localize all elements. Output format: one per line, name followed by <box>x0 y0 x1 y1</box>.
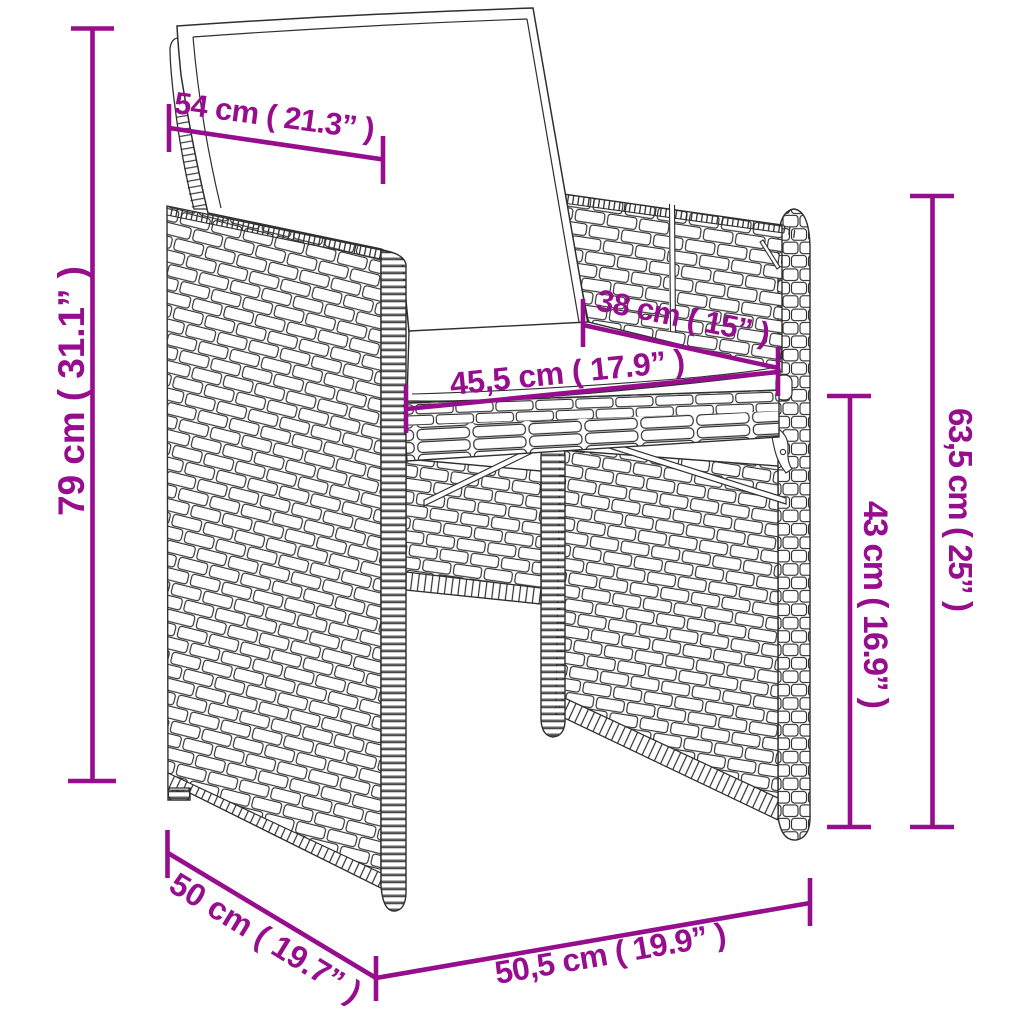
svg-text:63,5 cm ( 25” ): 63,5 cm ( 25” ) <box>942 408 979 612</box>
svg-text:43 cm ( 16.9” ): 43 cm ( 16.9” ) <box>856 501 894 709</box>
svg-text:79 cm ( 31.1” ): 79 cm ( 31.1” ) <box>51 266 92 516</box>
